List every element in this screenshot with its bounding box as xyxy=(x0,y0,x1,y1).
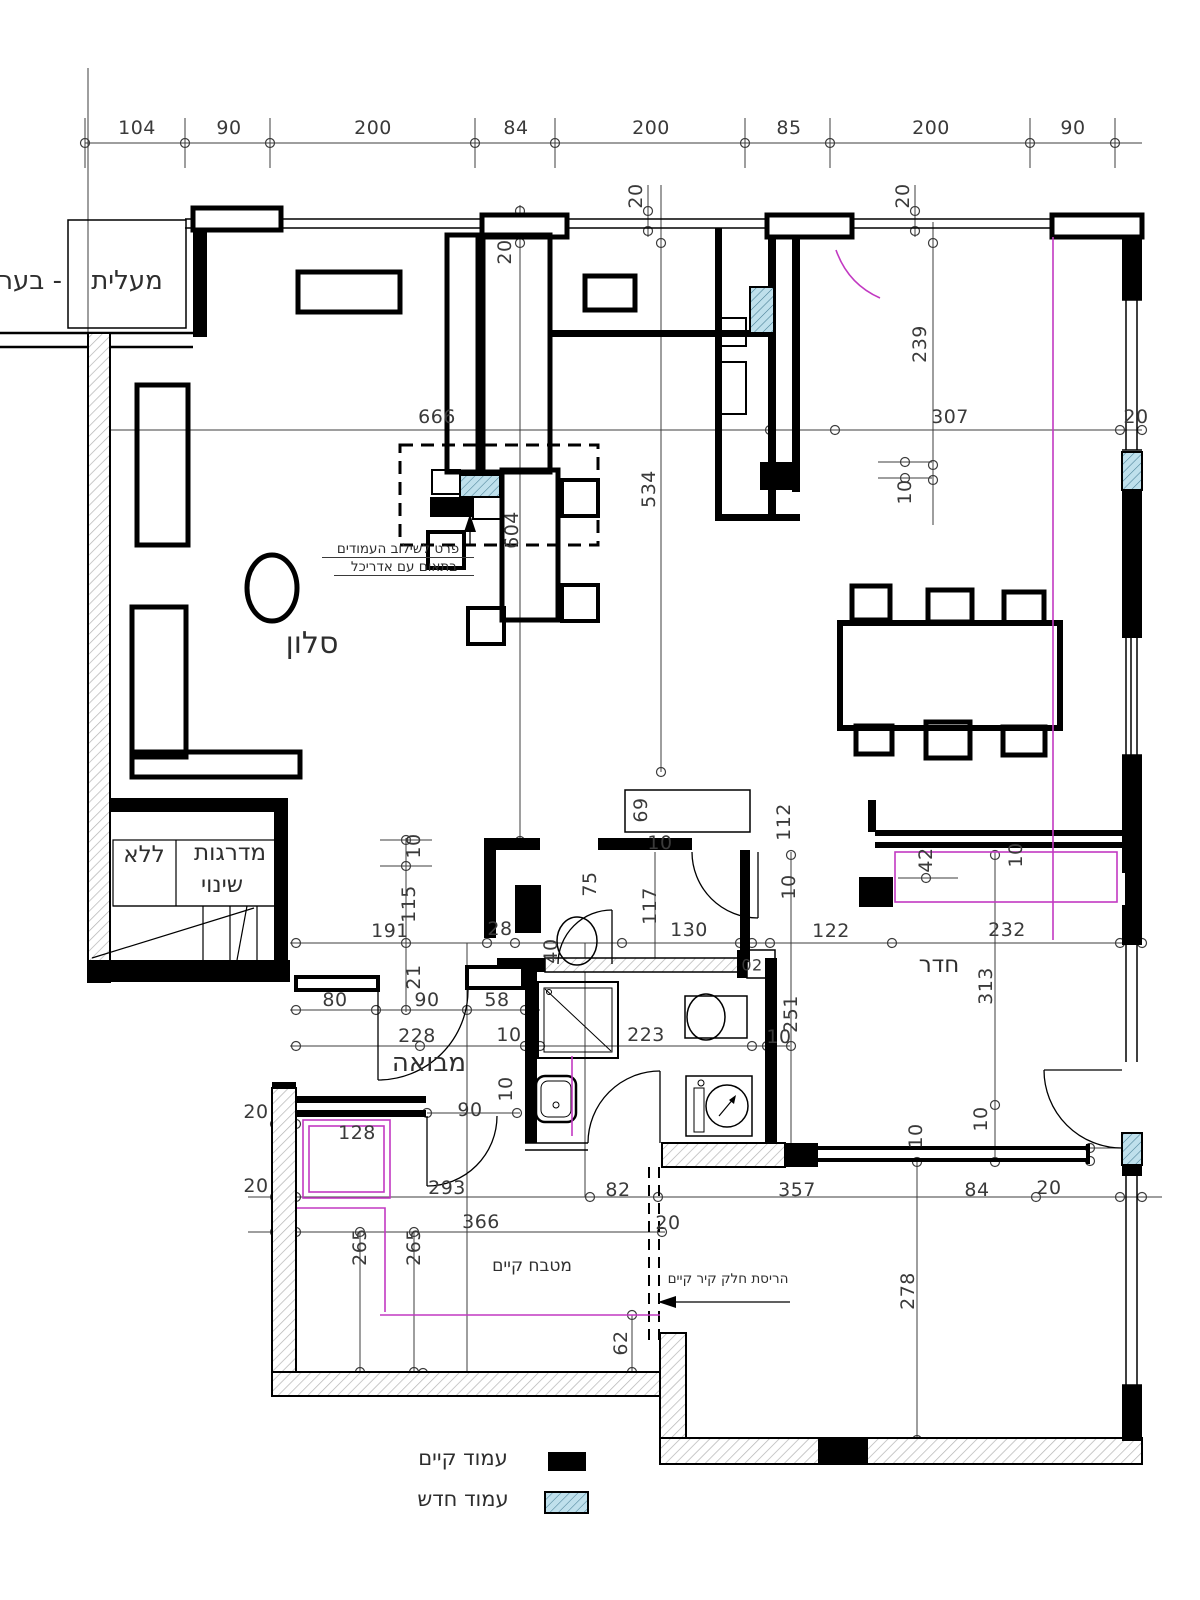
floor-plan-drawing xyxy=(0,0,1200,1600)
floor-plan-canvas: מעלית - בער סלון מדרגות ללא שינוי מבואה … xyxy=(0,0,1200,1600)
exterior-walls xyxy=(88,333,1142,1464)
furniture xyxy=(132,235,1060,978)
fixtures xyxy=(536,917,752,1136)
demolition-marks xyxy=(649,1167,790,1342)
wall-piers xyxy=(193,208,1142,990)
legend-new-swatch xyxy=(545,1492,588,1513)
legend-swatches xyxy=(545,1452,588,1513)
interior-walls xyxy=(88,215,1142,1441)
legend-existing-swatch xyxy=(548,1452,586,1471)
